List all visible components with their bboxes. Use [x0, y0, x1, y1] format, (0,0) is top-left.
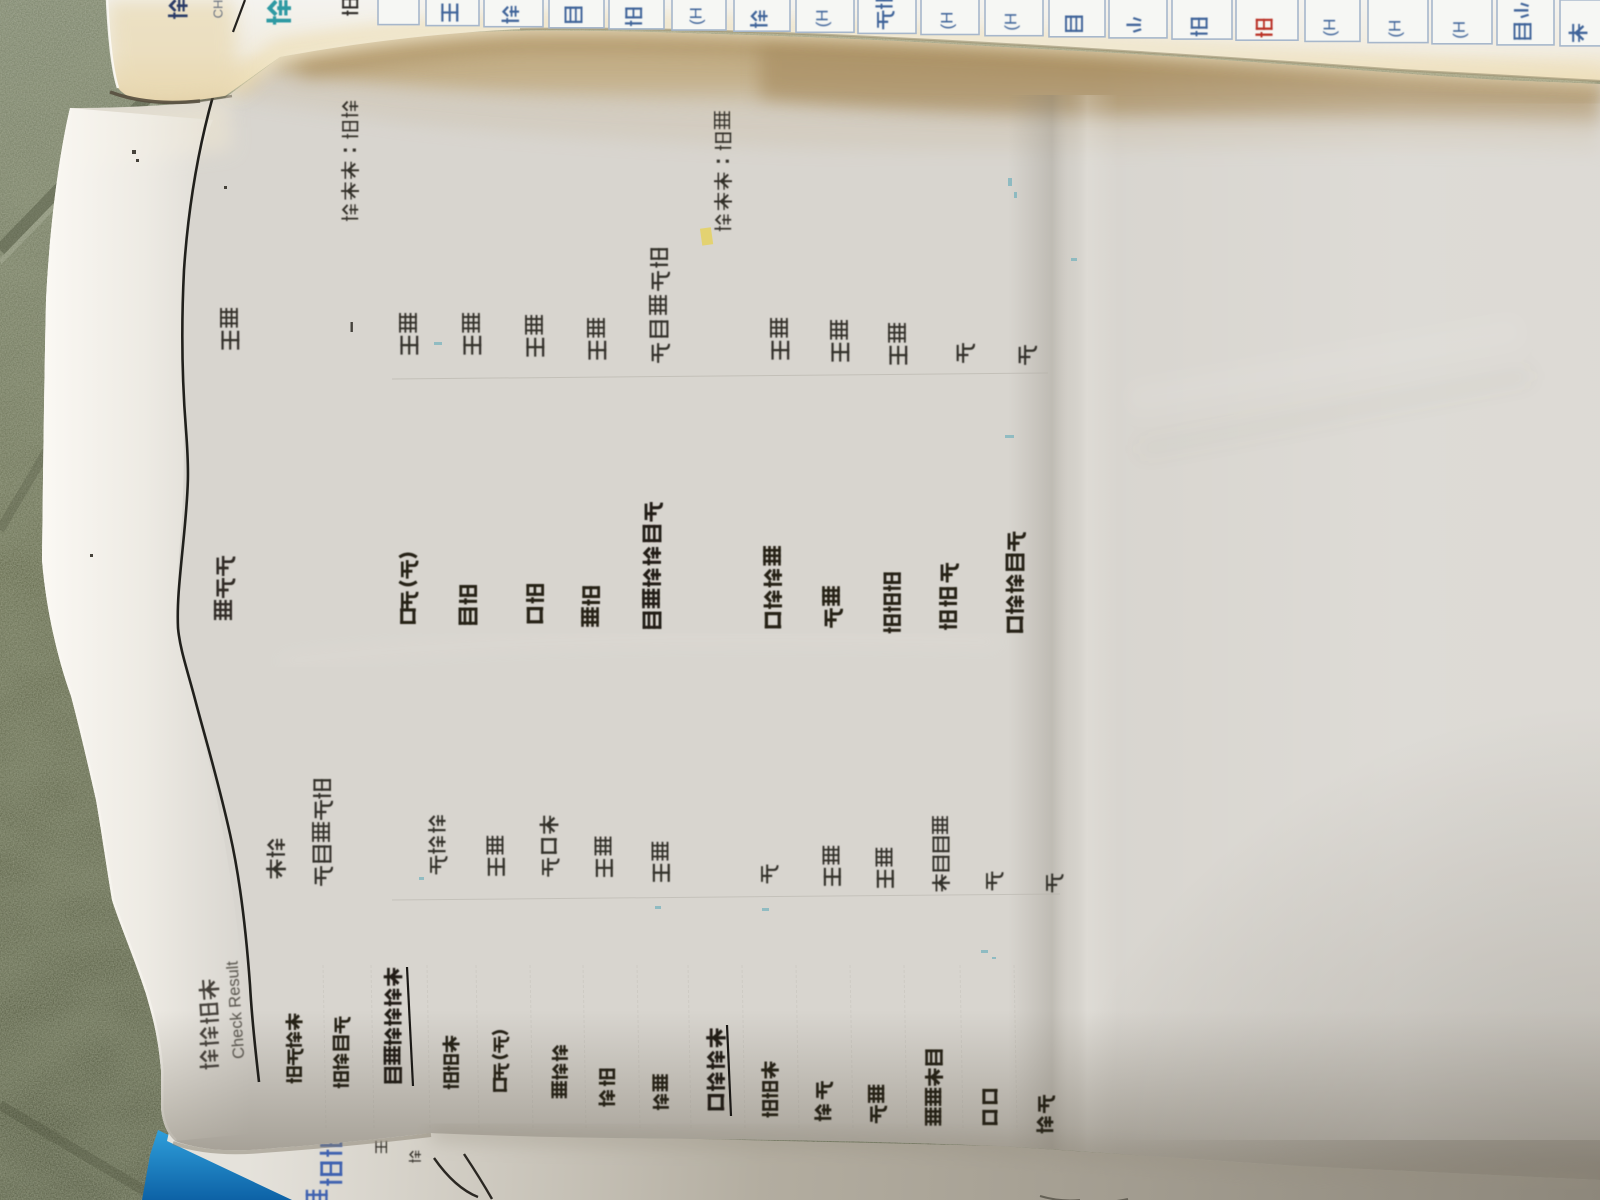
svg-text:(H: (H: [1320, 18, 1339, 36]
svg-text:(H: (H: [687, 7, 706, 25]
svg-text:(H: (H: [1386, 20, 1405, 38]
svg-text:(H: (H: [1450, 21, 1469, 39]
svg-text:CH: CH: [211, 0, 226, 18]
svg-text:(H: (H: [813, 9, 832, 27]
svg-text:(H: (H: [938, 12, 957, 30]
svg-text:(H: (H: [1002, 13, 1021, 31]
